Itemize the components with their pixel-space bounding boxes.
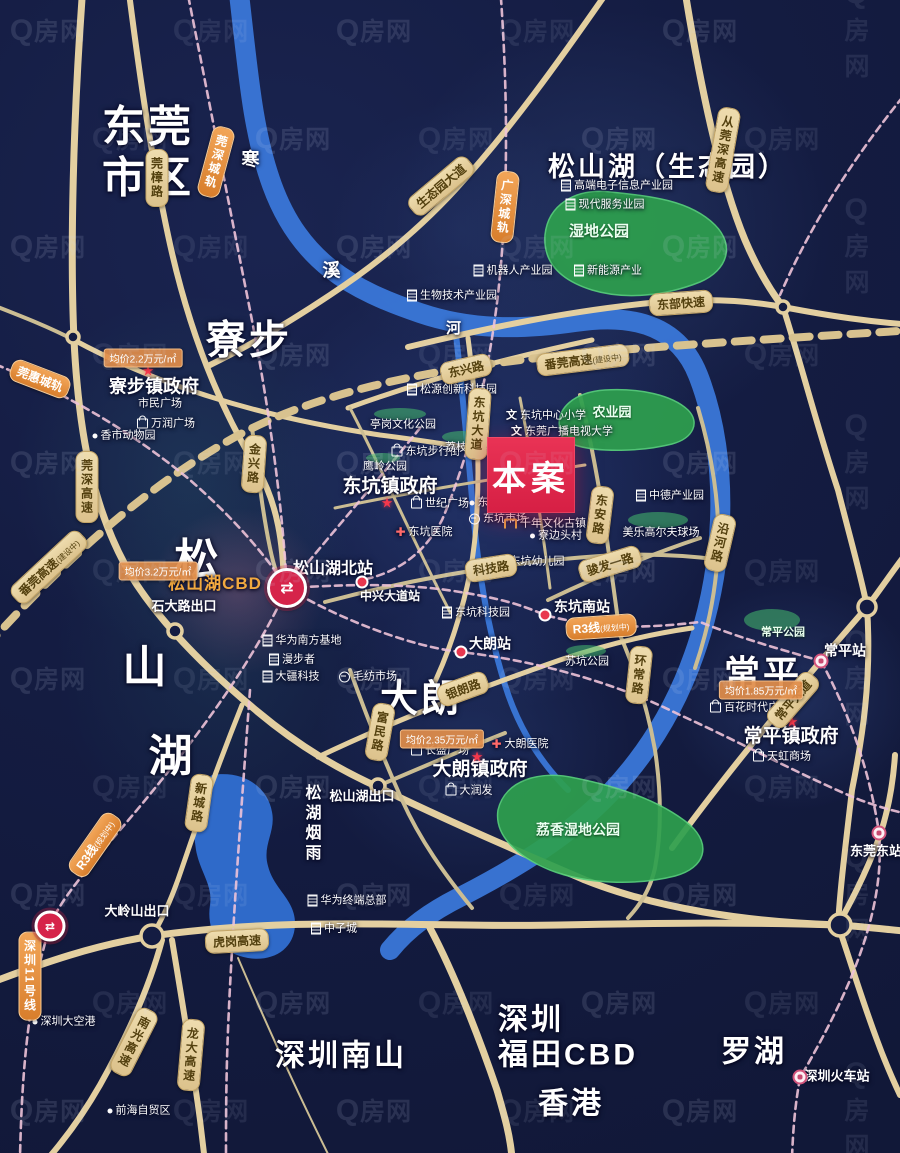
watermark-q: Q [499, 446, 523, 479]
watermark: Q房网 [173, 660, 249, 696]
watermark: Q房网 [92, 336, 168, 372]
watermark: Q房网 [662, 228, 738, 264]
watermark-q: Q [418, 122, 442, 155]
watermark-q: Q [581, 770, 605, 803]
watermark-q: Q [92, 338, 116, 371]
watermark: Q房网 [10, 228, 86, 264]
watermark: Q房网 [336, 1092, 412, 1128]
watermark-q: Q [10, 1094, 34, 1127]
watermark-layer: Q房网Q房网Q房网Q房网Q房网Q房网Q房网Q房网Q房网Q房网Q房网Q房网Q房网Q… [0, 0, 900, 1153]
watermark: Q房网 [336, 876, 412, 912]
watermark-q: Q [173, 446, 197, 479]
watermark: Q房网 [662, 1092, 738, 1128]
watermark-q: Q [173, 230, 197, 263]
watermark-q: Q [418, 986, 442, 1019]
watermark-q: Q [744, 122, 768, 155]
watermark-q: Q [499, 14, 523, 47]
watermark-q: Q [336, 446, 360, 479]
watermark: Q房网 [744, 768, 820, 804]
watermark: Q房网 [662, 876, 738, 912]
watermark-q: Q [10, 230, 34, 263]
watermark: Q房网 [744, 984, 820, 1020]
watermark: Q房网 [173, 12, 249, 48]
location-map: 东莞 市区松山湖（生态园）寮步大朗常平松山湖松湖烟雨寒溪河深圳南山深圳 福田CB… [0, 0, 900, 1153]
watermark-q: Q [336, 1094, 360, 1127]
watermark: Q房网 [173, 228, 249, 264]
watermark-q: Q [845, 0, 869, 10]
watermark: Q房网 [173, 876, 249, 912]
watermark-q: Q [581, 554, 605, 587]
watermark-q: Q [499, 230, 523, 263]
watermark-q: Q [845, 1057, 869, 1090]
watermark-q: Q [336, 230, 360, 263]
watermark-q: Q [10, 446, 34, 479]
watermark-q: Q [255, 338, 279, 371]
watermark: Q房网 [845, 625, 882, 731]
watermark: Q房网 [845, 193, 882, 299]
watermark-q: Q [92, 554, 116, 587]
watermark: Q房网 [418, 768, 494, 804]
watermark-q: Q [499, 662, 523, 695]
watermark-q: Q [418, 770, 442, 803]
watermark-q: Q [662, 14, 686, 47]
watermark-q: Q [255, 554, 279, 587]
watermark-q: Q [744, 986, 768, 1019]
watermark: Q房网 [499, 444, 575, 480]
watermark: Q房网 [662, 12, 738, 48]
watermark: Q房网 [744, 120, 820, 156]
watermark-q: Q [662, 662, 686, 695]
watermark: Q房网 [255, 552, 331, 588]
watermark-q: Q [662, 446, 686, 479]
watermark: Q房网 [499, 228, 575, 264]
watermark: Q房网 [744, 336, 820, 372]
watermark-q: Q [255, 986, 279, 1019]
watermark-q: Q [173, 878, 197, 911]
watermark-q: Q [662, 878, 686, 911]
watermark-q: Q [92, 770, 116, 803]
watermark: Q房网 [662, 660, 738, 696]
watermark-q: Q [10, 878, 34, 911]
watermark-q: Q [744, 770, 768, 803]
watermark: Q房网 [418, 984, 494, 1020]
watermark-q: Q [499, 1094, 523, 1127]
watermark-q: Q [336, 662, 360, 695]
watermark: Q房网 [92, 768, 168, 804]
watermark-q: Q [499, 878, 523, 911]
watermark-q: Q [10, 14, 34, 47]
watermark: Q房网 [10, 444, 86, 480]
watermark: Q房网 [499, 1092, 575, 1128]
watermark-q: Q [845, 625, 869, 658]
watermark-q: Q [581, 338, 605, 371]
watermark: Q房网 [336, 228, 412, 264]
watermark-q: Q [336, 14, 360, 47]
watermark: Q房网 [744, 552, 820, 588]
watermark: Q房网 [255, 768, 331, 804]
watermark: Q房网 [10, 660, 86, 696]
watermark-q: Q [662, 230, 686, 263]
watermark: Q房网 [10, 1092, 86, 1128]
watermark: Q房网 [581, 984, 657, 1020]
watermark-q: Q [845, 193, 869, 226]
watermark: Q房网 [581, 120, 657, 156]
watermark: Q房网 [662, 444, 738, 480]
watermark-q: Q [418, 554, 442, 587]
watermark: Q房网 [173, 444, 249, 480]
watermark-q: Q [336, 878, 360, 911]
watermark: Q房网 [499, 876, 575, 912]
watermark: Q房网 [10, 12, 86, 48]
watermark: Q房网 [92, 552, 168, 588]
watermark-q: Q [581, 122, 605, 155]
watermark-q: Q [173, 1094, 197, 1127]
watermark: Q房网 [92, 984, 168, 1020]
watermark: Q房网 [173, 1092, 249, 1128]
watermark-q: Q [10, 662, 34, 695]
watermark: Q房网 [255, 984, 331, 1020]
watermark: Q房网 [499, 12, 575, 48]
watermark-q: Q [173, 662, 197, 695]
watermark-q: Q [92, 122, 116, 155]
watermark: Q房网 [418, 120, 494, 156]
watermark-q: Q [173, 14, 197, 47]
watermark: Q房网 [845, 409, 882, 515]
watermark: Q房网 [92, 120, 168, 156]
watermark: Q房网 [581, 768, 657, 804]
watermark-q: Q [92, 986, 116, 1019]
watermark: Q房网 [418, 552, 494, 588]
watermark: Q房网 [845, 0, 882, 83]
watermark: Q房网 [418, 336, 494, 372]
watermark: Q房网 [581, 552, 657, 588]
watermark-q: Q [662, 1094, 686, 1127]
watermark-q: Q [255, 770, 279, 803]
watermark: Q房网 [336, 660, 412, 696]
watermark: Q房网 [845, 841, 882, 947]
watermark: Q房网 [845, 1057, 882, 1153]
watermark-q: Q [581, 986, 605, 1019]
watermark: Q房网 [255, 336, 331, 372]
watermark: Q房网 [581, 336, 657, 372]
watermark: Q房网 [255, 120, 331, 156]
watermark: Q房网 [336, 12, 412, 48]
watermark: Q房网 [499, 660, 575, 696]
watermark: Q房网 [10, 876, 86, 912]
watermark-q: Q [255, 122, 279, 155]
watermark-q: Q [744, 338, 768, 371]
watermark: Q房网 [336, 444, 412, 480]
watermark-q: Q [845, 841, 869, 874]
watermark-q: Q [744, 554, 768, 587]
watermark-q: Q [845, 409, 869, 442]
watermark-q: Q [418, 338, 442, 371]
